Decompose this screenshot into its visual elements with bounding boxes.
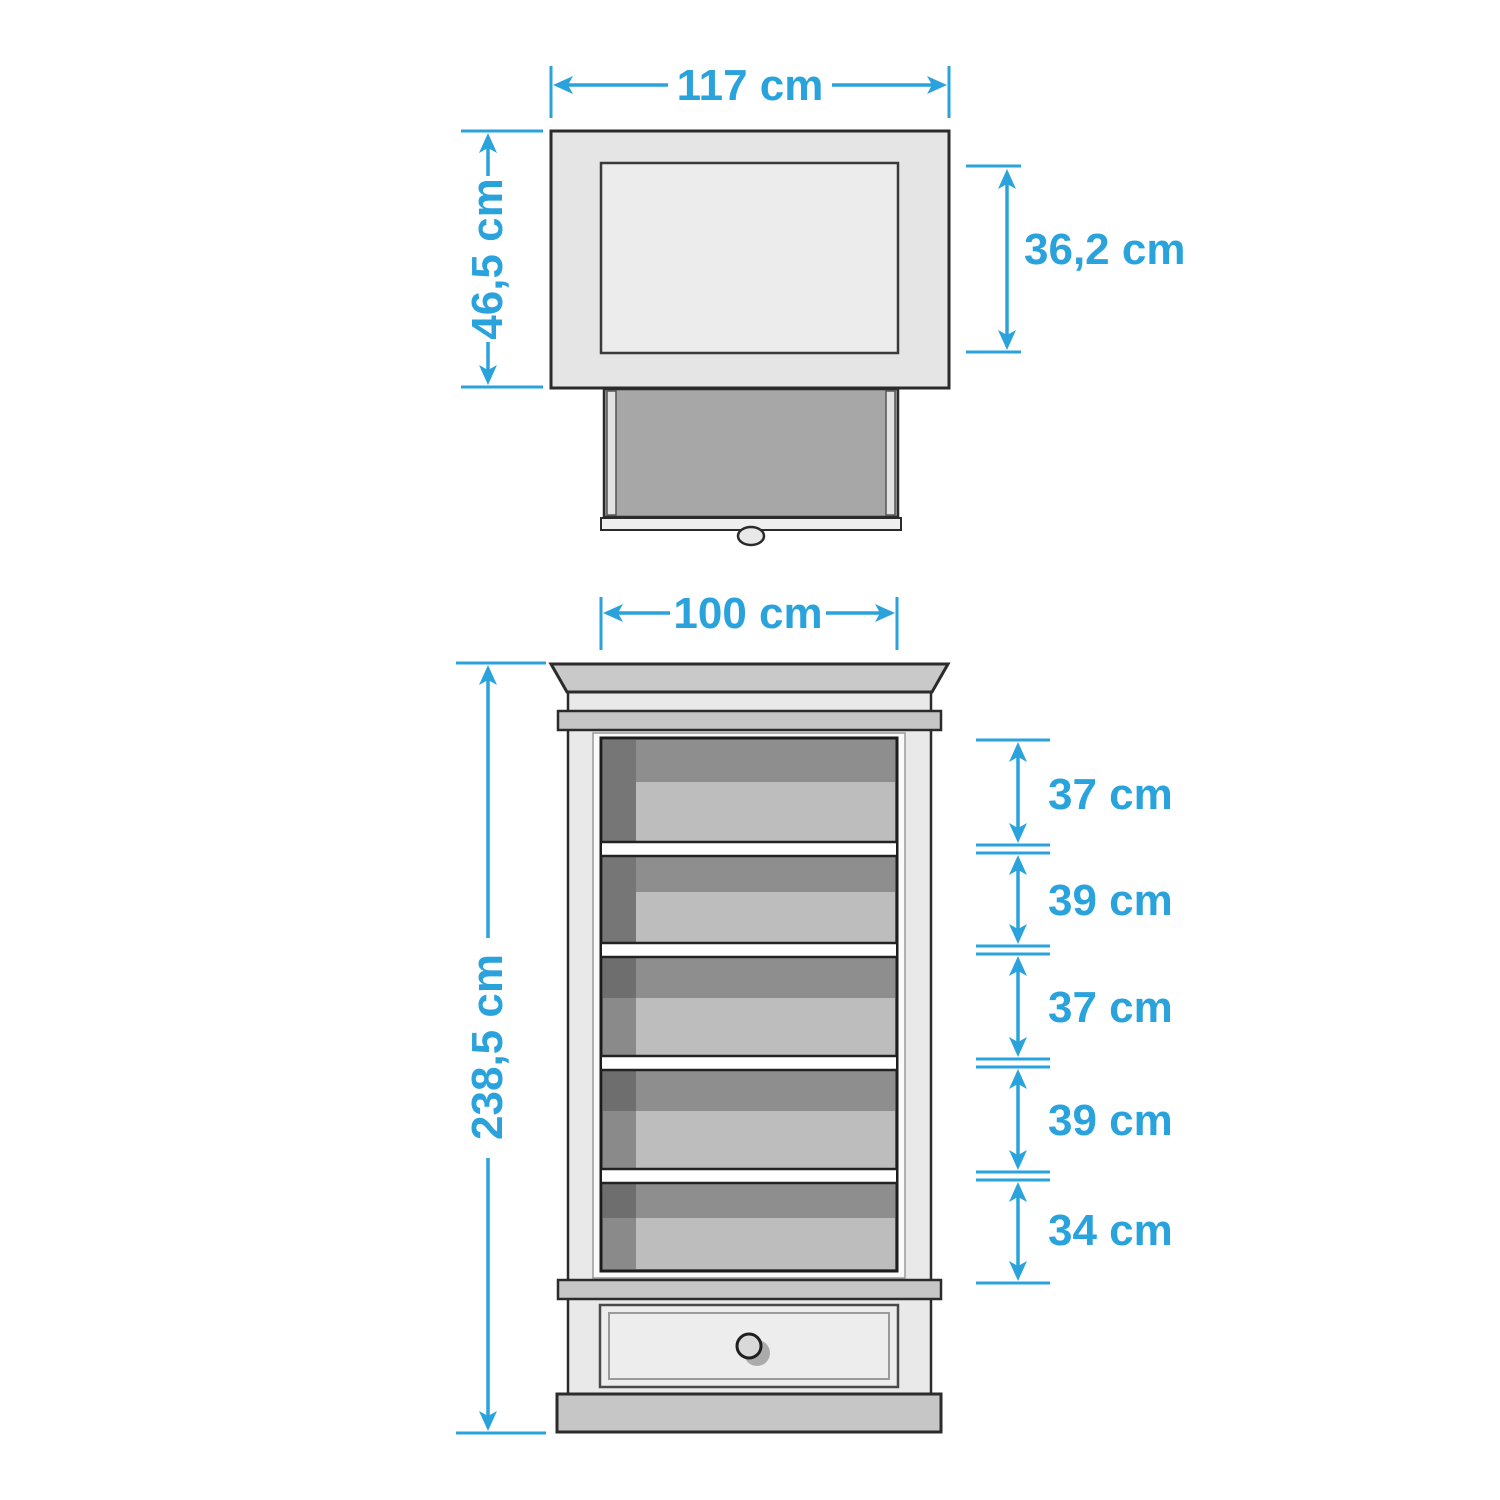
- compartment-shelf-floor: [636, 782, 895, 842]
- base-plinth: [557, 1394, 941, 1432]
- shelf-gap-label: 39 cm: [1048, 876, 1173, 925]
- drawer-knob-top-view: [738, 527, 764, 545]
- shelf-board: [602, 943, 896, 957]
- top-view: [551, 131, 949, 545]
- drawer-side-rail-right: [886, 391, 895, 515]
- dimension-label-width: 117 cm: [677, 61, 824, 110]
- dimension-front-height: 238,5 cm: [456, 663, 546, 1433]
- top-panel-inner-frame: [601, 163, 898, 353]
- compartment-shelf-floor: [636, 1218, 895, 1269]
- dimension-shelf-gaps: 37 cm 39 cm 37 cm 39 cm 34 cm: [976, 740, 1173, 1283]
- shelf-gap-label: 39 cm: [1048, 1096, 1173, 1145]
- diagram-svg: 117 cm 46,5 cm 36,2 cm: [0, 0, 1500, 1500]
- shelf-gap-label: 37 cm: [1048, 983, 1173, 1032]
- drawer-side-rail-left: [607, 391, 616, 515]
- shelf-board: [602, 1056, 896, 1070]
- compartment-shadow-strip: [603, 856, 636, 943]
- shelf-gap-label: 37 cm: [1048, 770, 1173, 819]
- compartment-shadow-strip: [603, 740, 636, 842]
- compartment-shelf-floor: [636, 1111, 895, 1169]
- dimension-diagram-canvas: 117 cm 46,5 cm 36,2 cm: [0, 0, 1500, 1500]
- open-drawer-cavity: [604, 389, 898, 517]
- dimension-label-inner-depth: 36,2 cm: [1024, 225, 1185, 274]
- dimension-top-width: 117 cm: [551, 61, 949, 118]
- lower-trim-belt: [558, 1280, 941, 1299]
- shelf-gap-label: 34 cm: [1048, 1206, 1173, 1255]
- compartment-shelf-floor: [636, 998, 895, 1056]
- drawer-knob-front-view: [737, 1334, 761, 1358]
- shelf-divider: [601, 943, 897, 957]
- crown-molding: [551, 664, 948, 692]
- upper-trim-belt: [558, 711, 941, 730]
- shelf-divider: [601, 1169, 897, 1183]
- dimension-label-front-width: 100 cm: [673, 589, 822, 638]
- dimension-top-depth: 46,5 cm: [461, 131, 543, 387]
- compartment-shadow-strip-lower: [603, 1111, 636, 1169]
- dimension-top-inner-depth: 36,2 cm: [966, 166, 1185, 352]
- compartment-shelf-floor: [636, 892, 895, 943]
- front-view: [551, 664, 948, 1432]
- dimension-label-front-height: 238,5 cm: [463, 954, 512, 1140]
- shelf-board: [602, 1169, 896, 1183]
- compartment-shadow-strip-lower: [603, 1218, 636, 1269]
- compartment-shadow-strip-lower: [603, 998, 636, 1056]
- dimension-label-depth: 46,5 cm: [463, 178, 512, 339]
- dimension-front-width: 100 cm: [601, 589, 897, 650]
- shelf-board: [602, 842, 896, 856]
- shelf-divider: [601, 1056, 897, 1070]
- drawer-front: [600, 1305, 898, 1387]
- shelf-divider: [601, 842, 897, 856]
